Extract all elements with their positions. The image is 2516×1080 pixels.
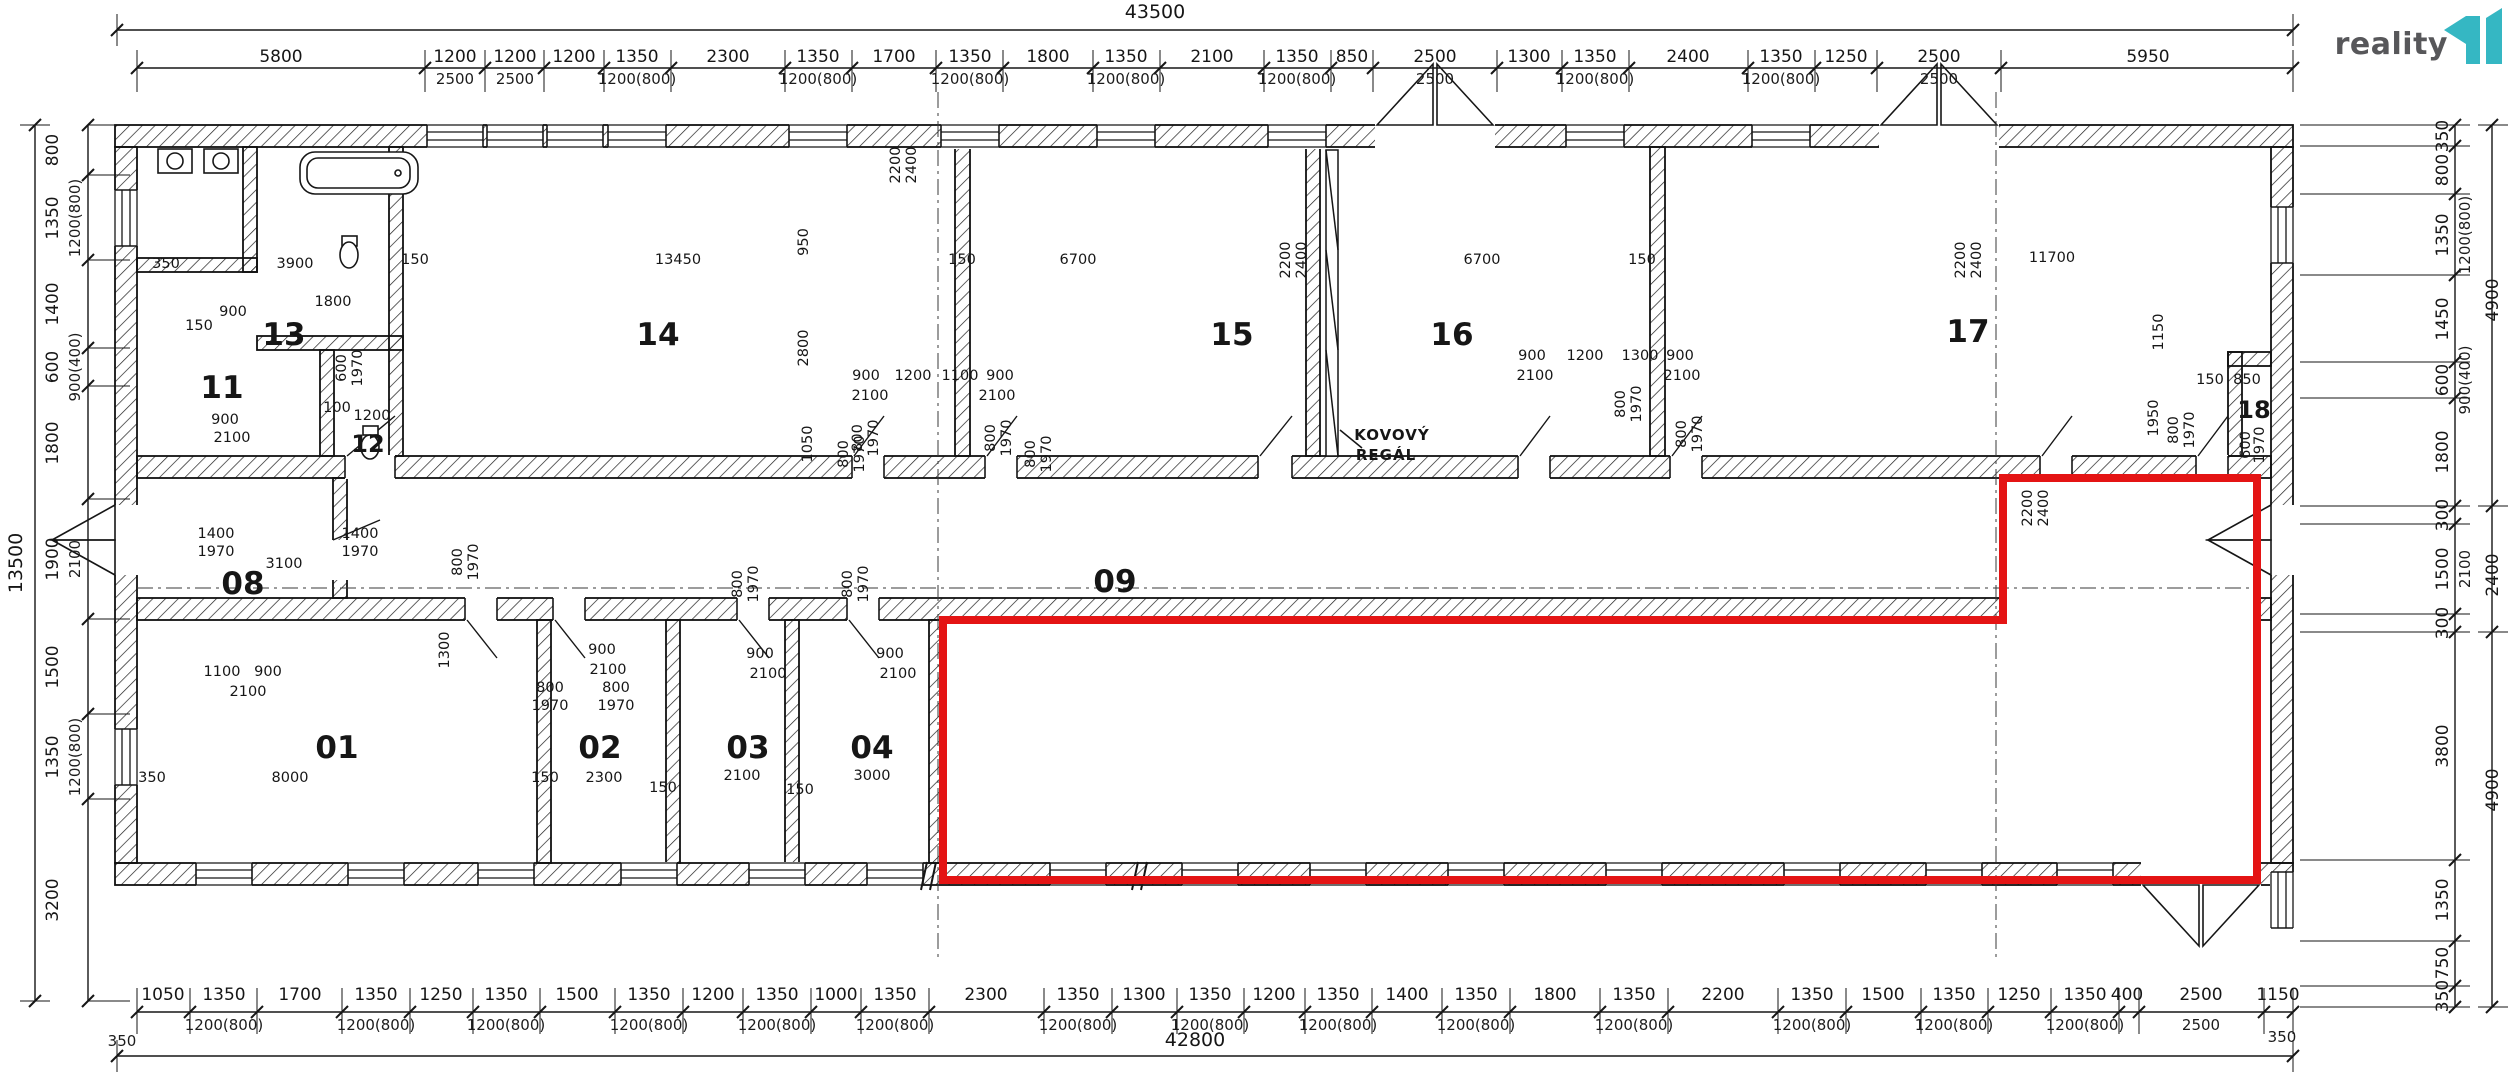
- dimension-label: 150: [401, 252, 429, 268]
- dimension-label: 2100: [1190, 47, 1233, 67]
- dimension-label: 2100: [590, 662, 627, 678]
- dimension-label: 1200(800): [2456, 196, 2474, 275]
- dimension-label: 3800: [2433, 724, 2453, 767]
- dimension-label: 1200(800): [66, 718, 84, 797]
- dimension-label: 2100: [214, 430, 251, 446]
- dimension-label: 2100: [66, 540, 84, 578]
- dimension-label: 1200: [354, 408, 391, 424]
- dimension-label: 1200(800): [779, 70, 858, 88]
- dimension-label: 150: [786, 782, 814, 798]
- dimension-label: 600: [2433, 364, 2453, 396]
- dimension-label: 400: [2111, 985, 2143, 1005]
- dimension-label: 850: [1336, 47, 1368, 67]
- dimension-label: 1350: [1188, 985, 1231, 1005]
- dimension-label: 800: [1674, 420, 1690, 448]
- dimension-label: 1350: [1759, 47, 1802, 67]
- dimension-label: 1250: [1824, 47, 1867, 67]
- dimension-label: 1350: [1275, 47, 1318, 67]
- dimension-label: 1200: [691, 985, 734, 1005]
- room-label: 01: [315, 730, 358, 766]
- dimension-label: 2100: [979, 388, 1016, 404]
- room-label: 12: [351, 430, 384, 458]
- shelf-annotation: KOVOVÝ: [1354, 425, 1430, 444]
- dimension-label: 1300: [1507, 47, 1550, 67]
- dimension-label: 150: [185, 318, 213, 334]
- dimension-label: 1200(800): [1299, 1016, 1378, 1034]
- dimension-label: 1970: [852, 436, 868, 473]
- dimension-label: 1300: [1622, 348, 1659, 364]
- dimension-label: 1350: [484, 985, 527, 1005]
- dimension-label: 1350: [1454, 985, 1497, 1005]
- dimension-label: 1200(800): [1915, 1016, 1994, 1034]
- dimension-label: 1700: [278, 985, 321, 1005]
- dimension-label: 8000: [272, 770, 309, 786]
- dimension-label: 1350: [2433, 213, 2453, 256]
- dimension-label: 1100: [942, 368, 979, 384]
- dimension-label: 2100: [724, 768, 761, 784]
- dimension-label: 2200: [2020, 490, 2036, 527]
- room-label: 08: [221, 566, 264, 602]
- dimension-label: 2400: [1969, 242, 1985, 279]
- dimension-label: 350: [138, 770, 166, 786]
- dimension-label: 1970: [999, 420, 1015, 457]
- dimension-label: 1200(800): [1258, 70, 1337, 88]
- dimension-label: 150: [649, 780, 677, 796]
- dimension-label: 1950: [2146, 400, 2162, 437]
- dimension-label: 2100: [230, 684, 267, 700]
- dimension-label: 1350: [1316, 985, 1359, 1005]
- dimension-label: 1200(800): [1556, 70, 1635, 88]
- dimension-label: 1970: [746, 566, 762, 603]
- dimension-label: 800: [836, 440, 852, 468]
- dimension-label: 1970: [1690, 416, 1706, 453]
- dimension-label: 1350: [615, 47, 658, 67]
- highlighted-area-outline: [943, 478, 2257, 880]
- dimension-label: 900: [876, 646, 904, 662]
- dimension-label: 1200(800): [2046, 1016, 2125, 1034]
- dimension-label: 4900: [2483, 278, 2503, 321]
- dimension-label: 1970: [466, 544, 482, 581]
- dimension-label: 800: [2166, 416, 2182, 444]
- dimension-label: 1200(800): [337, 1016, 416, 1034]
- dimension-label: 1350: [43, 196, 63, 239]
- dimension-label: 13450: [655, 252, 701, 268]
- dimension-label: 1350: [755, 985, 798, 1005]
- dimension-label: 350: [108, 1032, 137, 1050]
- dimension-label: 1970: [198, 544, 235, 560]
- dimension-label: 150: [948, 252, 976, 268]
- dimension-label: 1000: [814, 985, 857, 1005]
- metal-shelf: [1326, 150, 1362, 456]
- dimension-label: 150: [1628, 252, 1656, 268]
- dimension-label: 2300: [964, 985, 1007, 1005]
- dimension-label: 1970: [350, 350, 366, 387]
- dimension-label: 1350: [1573, 47, 1616, 67]
- dimension-label: 2500: [1416, 70, 1454, 88]
- dimension-label: 1970: [2252, 427, 2268, 464]
- dimension-label: 6700: [1464, 252, 1501, 268]
- dimension-label: 800: [1023, 440, 1039, 468]
- dimension-label: 1200(800): [467, 1016, 546, 1034]
- dimension-label: 800: [730, 570, 746, 598]
- dimension-label: 1970: [1039, 436, 1055, 473]
- room-label: 17: [1946, 314, 1989, 350]
- dimension-label: 1350: [2063, 985, 2106, 1005]
- building-walls: [115, 125, 2293, 885]
- dimension-label: 2400: [1294, 242, 1310, 279]
- dimension-label: 1970: [1629, 386, 1645, 423]
- reality11-logo: reality: [2335, 8, 2502, 64]
- dimension-label: 1200: [1252, 985, 1295, 1005]
- dimension-label: 800: [840, 570, 856, 598]
- dimension-label: 900: [1518, 348, 1546, 364]
- logo-text: reality: [2335, 27, 2448, 62]
- dimension-label: 900: [746, 646, 774, 662]
- room-label: 13: [262, 317, 305, 353]
- dimension-label: 800: [2433, 154, 2453, 186]
- dimension-label: 1350: [1790, 985, 1833, 1005]
- dimension-label: 900: [1666, 348, 1694, 364]
- dimension-label: 1400: [198, 526, 235, 542]
- dimension-label: 1800: [315, 294, 352, 310]
- dimension-label: 900: [254, 664, 282, 680]
- dimension-label: 2200: [1953, 242, 1969, 279]
- dimension-label: 1250: [419, 985, 462, 1005]
- dimension-label: 900: [588, 642, 616, 658]
- room-label: 18: [2237, 396, 2270, 424]
- dimension-label: 1450: [2433, 297, 2453, 340]
- dimension-label: 1350: [1612, 985, 1655, 1005]
- dimension-label: 1200(800): [66, 179, 84, 258]
- dimension-label: 1350: [1056, 985, 1099, 1005]
- dimension-label: 2100: [2456, 550, 2474, 588]
- dimension-label: 1350: [2433, 878, 2453, 921]
- dimension-label: 2500: [1917, 47, 1960, 67]
- axis-lines: [137, 92, 2257, 960]
- dimension-label: 1250: [1997, 985, 2040, 1005]
- dimension-label: 1970: [342, 544, 379, 560]
- dimension-label: 1350: [43, 735, 63, 778]
- room-label: 03: [726, 730, 769, 766]
- room-label: 04: [850, 730, 893, 766]
- dimension-label: 1400: [43, 282, 63, 325]
- dimension-label: 1970: [598, 698, 635, 714]
- room-label: 15: [1210, 317, 1253, 353]
- room-label: 02: [578, 730, 621, 766]
- dimension-label: 1500: [43, 645, 63, 688]
- dimension-label: 350: [2268, 1028, 2297, 1046]
- dimension-label: 100: [323, 400, 351, 416]
- dimension-label: 1300: [437, 632, 453, 669]
- dimension-label: 1050: [800, 426, 816, 463]
- dimension-label: 1100: [204, 664, 241, 680]
- room-label: 09: [1093, 564, 1136, 600]
- dimension-label: 2800: [796, 330, 812, 367]
- dimension-label: 3000: [854, 768, 891, 784]
- dimension-label: 1200: [895, 368, 932, 384]
- dimension-label: 2400: [1666, 47, 1709, 67]
- dimension-label: 3200: [43, 878, 63, 921]
- dimension-label: 800: [536, 680, 564, 696]
- dimension-label: 800: [450, 548, 466, 576]
- logo-11-icon: [2444, 8, 2502, 64]
- dimension-label: 2500: [1920, 70, 1958, 88]
- dimension-label: 850: [2233, 372, 2261, 388]
- dimension-label: 4900: [2483, 768, 2503, 811]
- room-label: 16: [1430, 317, 1473, 353]
- dimension-label: 350: [2433, 120, 2453, 152]
- dimension-label: 1200(800): [1742, 70, 1821, 88]
- overall-width-label: 43500: [1125, 1, 1185, 23]
- dimension-label: 2500: [496, 70, 534, 88]
- dimension-label: 800: [983, 424, 999, 452]
- dimension-label: 5950: [2126, 47, 2169, 67]
- dimension-label: 1970: [532, 698, 569, 714]
- dimension-label: 2500: [436, 70, 474, 88]
- dimension-label: 1200(800): [1437, 1016, 1516, 1034]
- dimension-label: 150: [531, 770, 559, 786]
- dimension-label: 2500: [2182, 1016, 2220, 1034]
- dimension-label: 800: [602, 680, 630, 696]
- dimension-label: 1350: [627, 985, 670, 1005]
- dimension-label: 1970: [856, 566, 872, 603]
- dimension-label: 150: [2196, 372, 2224, 388]
- dimension-label: 600: [334, 354, 350, 382]
- dimension-label: 2100: [852, 388, 889, 404]
- dimension-label: 1350: [202, 985, 245, 1005]
- dimension-label: 2300: [706, 47, 749, 67]
- room-label: 14: [636, 317, 679, 353]
- dimension-label: 800: [43, 134, 63, 166]
- dimension-label: 1200(800): [598, 70, 677, 88]
- dimension-label: 2200: [1278, 242, 1294, 279]
- dimension-label: 750: [2433, 947, 2453, 979]
- dimension-label: 900: [852, 368, 880, 384]
- dimension-label: 1300: [1122, 985, 1165, 1005]
- dimension-label: 11700: [2029, 250, 2075, 266]
- dimension-label: 1500: [1861, 985, 1904, 1005]
- dimension-label: 2100: [1664, 368, 1701, 384]
- dimension-label: 350: [152, 256, 180, 272]
- tub-drain-icon: [395, 170, 401, 176]
- dimension-label: 1150: [2151, 314, 2167, 351]
- dimension-label: 1200: [1567, 348, 1604, 364]
- dimension-label: 1900: [43, 537, 63, 580]
- dimension-label: 2300: [586, 770, 623, 786]
- floor-plan-page: 43500 42800 13500 5800120012001200135023…: [0, 0, 2516, 1080]
- dimension-label: 2200: [888, 147, 904, 184]
- dimension-label: 1200: [493, 47, 536, 67]
- dimension-label: 950: [796, 228, 812, 256]
- dimension-label: 3100: [266, 556, 303, 572]
- dimension-label: 1800: [2433, 430, 2453, 473]
- dimension-label: 1200(800): [610, 1016, 689, 1034]
- dimension-label: 2400: [2483, 553, 2503, 596]
- dimension-label: 2500: [2179, 985, 2222, 1005]
- dimension-label: 800: [1613, 390, 1629, 418]
- dimension-label: 1200(800): [1039, 1016, 1118, 1034]
- room-label: 11: [200, 370, 243, 406]
- dimension-label: 1350: [1932, 985, 1975, 1005]
- dimension-label: 2200: [1701, 985, 1744, 1005]
- door-swing-icon: [2143, 885, 2199, 946]
- dimension-label: 1050: [141, 985, 184, 1005]
- dimension-label: 1200(800): [931, 70, 1010, 88]
- dimension-label: 1800: [43, 421, 63, 464]
- dimension-label: 2400: [904, 147, 920, 184]
- dimension-label: 1350: [1104, 47, 1147, 67]
- door-swing-icon: [2203, 885, 2259, 946]
- door-swing-icon: [2208, 505, 2271, 540]
- dimension-label: 1200(800): [1171, 1016, 1250, 1034]
- dimension-label: 1800: [1026, 47, 1069, 67]
- floor-plan-drawing: 43500 42800 13500 5800120012001200135023…: [0, 0, 2516, 1080]
- door-swing-icon: [2208, 540, 2271, 575]
- dimension-label: 3900: [277, 256, 314, 272]
- dimension-label: 1200(800): [185, 1016, 264, 1034]
- dimension-label: 1200: [433, 47, 476, 67]
- dimension-label: 1350: [948, 47, 991, 67]
- dimension-label: 1500: [2433, 547, 2453, 590]
- dimension-label: 1700: [872, 47, 915, 67]
- dimension-label: 1350: [354, 985, 397, 1005]
- door-swing-icon: [52, 505, 115, 540]
- dimension-label: 900: [986, 368, 1014, 384]
- dimension-label: 5800: [259, 47, 302, 67]
- dimension-label: 300: [2433, 499, 2453, 531]
- dimension-label: 900(400): [66, 333, 84, 402]
- dimension-label: 1970: [2182, 412, 2198, 449]
- dimension-label: 2100: [880, 666, 917, 682]
- dimension-label: 1500: [555, 985, 598, 1005]
- dimension-label: 1200(800): [1087, 70, 1166, 88]
- dimension-label: 6700: [1060, 252, 1097, 268]
- dimension-label: 1200(800): [856, 1016, 935, 1034]
- dimension-label: 2500: [1413, 47, 1456, 67]
- dimension-label: 1150: [2256, 985, 2299, 1005]
- dimension-label: 1400: [342, 526, 379, 542]
- dimension-label: 1970: [866, 420, 882, 457]
- shelf-annotation: REGÁL: [1356, 445, 1416, 464]
- dimension-label: 2100: [1517, 368, 1554, 384]
- dimension-label: 1400: [1385, 985, 1428, 1005]
- dimension-label: 600: [43, 351, 63, 383]
- dimension-label: 1200(800): [738, 1016, 817, 1034]
- dimension-label: 350: [2433, 980, 2453, 1012]
- dimension-label: 900(400): [2456, 346, 2474, 415]
- dimension-label: 900: [211, 412, 239, 428]
- dimension-label: 2400: [2036, 490, 2052, 527]
- dimension-label: 1800: [1533, 985, 1576, 1005]
- overall-height-label: 13500: [5, 533, 27, 593]
- dimension-label: 1350: [873, 985, 916, 1005]
- dimension-label: 2100: [750, 666, 787, 682]
- dimension-label: 900: [219, 304, 247, 320]
- dimension-label: 1200(800): [1595, 1016, 1674, 1034]
- dimension-label: 1350: [796, 47, 839, 67]
- dimension-label: 300: [2433, 607, 2453, 639]
- dimension-label: 1200(800): [1773, 1016, 1852, 1034]
- dimension-label: 1200: [552, 47, 595, 67]
